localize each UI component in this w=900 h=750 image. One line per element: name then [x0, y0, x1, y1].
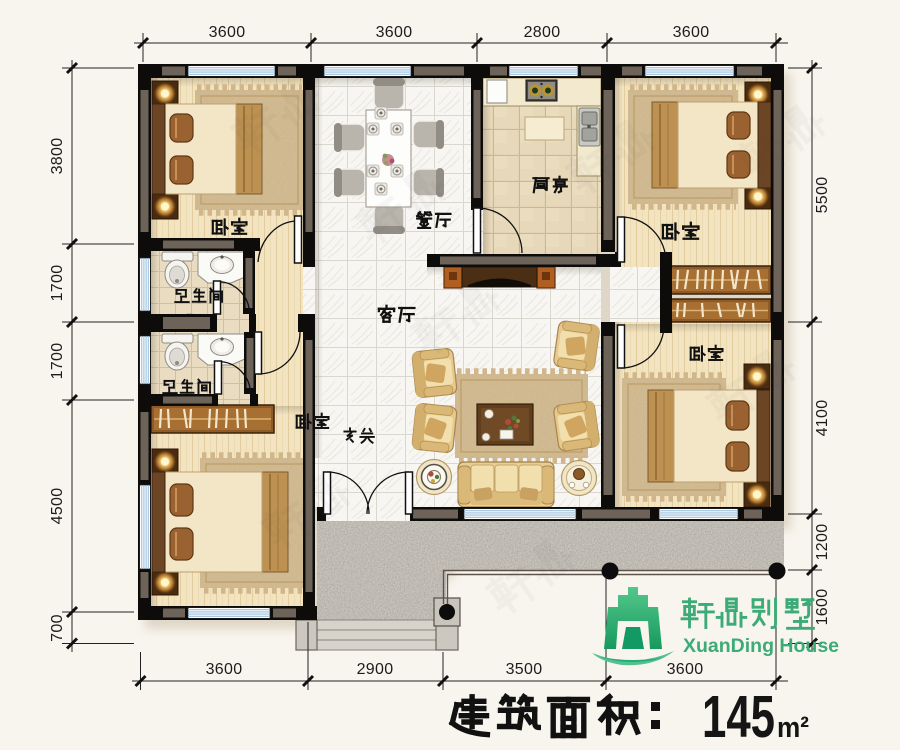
svg-text:2900: 2900	[357, 661, 394, 678]
svg-text:m²: m²	[777, 712, 809, 744]
svg-text:3600: 3600	[376, 24, 413, 41]
svg-text:3600: 3600	[209, 24, 246, 41]
svg-text:3600: 3600	[673, 24, 710, 41]
svg-text:1600: 1600	[814, 589, 831, 626]
svg-text:1700: 1700	[49, 343, 66, 380]
svg-text:5500: 5500	[814, 177, 831, 214]
svg-text:XuanDing House: XuanDing House	[683, 635, 839, 657]
svg-text:145: 145	[702, 684, 775, 750]
svg-text:2800: 2800	[524, 24, 561, 41]
svg-text:1200: 1200	[814, 524, 831, 561]
svg-text:3600: 3600	[206, 661, 243, 678]
svg-text:700: 700	[49, 614, 66, 642]
svg-text:3800: 3800	[49, 138, 66, 175]
svg-text:1700: 1700	[49, 265, 66, 302]
svg-text:3600: 3600	[667, 661, 704, 678]
svg-text:4500: 4500	[49, 488, 66, 525]
svg-text:3500: 3500	[506, 661, 543, 678]
svg-text:4100: 4100	[814, 400, 831, 437]
